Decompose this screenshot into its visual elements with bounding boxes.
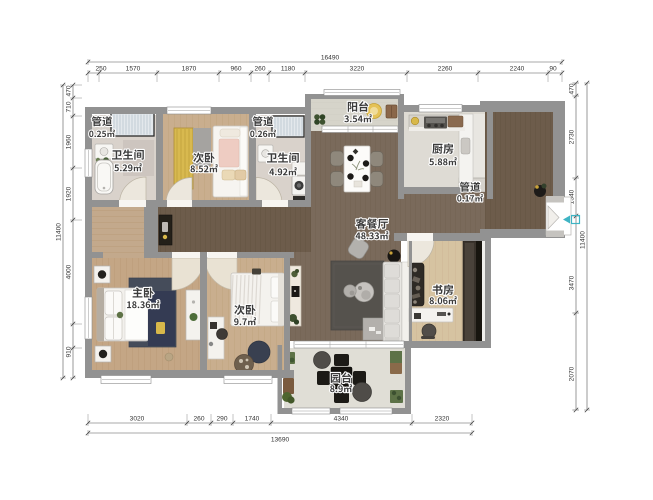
svg-text:11400: 11400 xyxy=(580,231,587,249)
svg-text:960: 960 xyxy=(230,66,241,73)
svg-text:1740: 1740 xyxy=(245,416,260,423)
svg-text:2070: 2070 xyxy=(569,366,576,381)
svg-text:2260: 2260 xyxy=(438,66,453,73)
svg-text:290: 290 xyxy=(216,416,227,423)
svg-text:11400: 11400 xyxy=(56,223,63,241)
svg-text:4000: 4000 xyxy=(66,264,73,279)
svg-text:3470: 3470 xyxy=(569,275,576,290)
svg-text:250: 250 xyxy=(95,66,106,73)
svg-text:4340: 4340 xyxy=(334,416,349,423)
svg-text:3020: 3020 xyxy=(130,416,145,423)
svg-text:1960: 1960 xyxy=(66,134,73,149)
svg-text:2240: 2240 xyxy=(510,66,525,73)
svg-text:13690: 13690 xyxy=(271,437,290,444)
svg-text:910: 910 xyxy=(66,346,73,357)
svg-text:90: 90 xyxy=(549,66,557,73)
svg-text:260: 260 xyxy=(193,416,204,423)
svg-text:1870: 1870 xyxy=(182,66,197,73)
svg-text:1920: 1920 xyxy=(66,186,73,201)
svg-text:16490: 16490 xyxy=(321,55,340,62)
svg-text:260: 260 xyxy=(254,66,265,73)
svg-text:3220: 3220 xyxy=(350,66,365,73)
svg-text:2730: 2730 xyxy=(569,129,576,144)
svg-text:2320: 2320 xyxy=(435,416,450,423)
svg-text:1570: 1570 xyxy=(126,66,141,73)
svg-text:710: 710 xyxy=(66,101,73,112)
svg-text:1180: 1180 xyxy=(281,66,296,73)
svg-text:470: 470 xyxy=(569,83,576,94)
svg-text:470: 470 xyxy=(66,85,73,96)
